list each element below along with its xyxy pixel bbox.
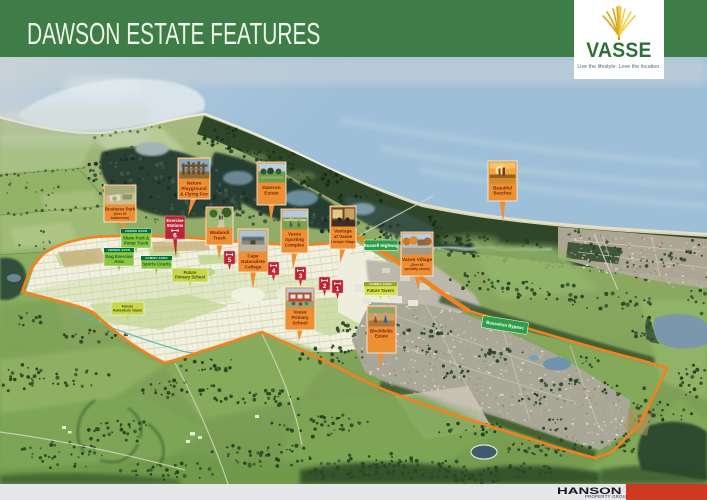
svg-text:at Vasse: at Vasse bbox=[334, 234, 353, 239]
svg-text:Future Tavern: Future Tavern bbox=[367, 288, 394, 293]
svg-text:Primary: Primary bbox=[291, 315, 309, 320]
svg-text:Primary School: Primary School bbox=[175, 275, 205, 280]
svg-text:Dawson: Dawson bbox=[262, 185, 280, 191]
svg-text:COMING SOON: COMING SOON bbox=[145, 256, 167, 260]
svg-text:Stations: Stations bbox=[167, 223, 184, 228]
svg-text:3: 3 bbox=[299, 273, 303, 280]
svg-text:businesses): businesses) bbox=[111, 216, 129, 220]
svg-text:specialty stores): specialty stores) bbox=[404, 267, 429, 271]
svg-text:Business Park: Business Park bbox=[105, 207, 136, 212]
svg-text:Sports Courts: Sports Courts bbox=[142, 262, 171, 267]
svg-text:5: 5 bbox=[228, 257, 232, 264]
svg-text:6: 6 bbox=[173, 233, 177, 240]
svg-text:Lifestyle Village: Lifestyle Village bbox=[331, 240, 355, 244]
svg-text:Vasse: Vasse bbox=[293, 310, 306, 315]
svg-text:Estate: Estate bbox=[264, 191, 279, 197]
svg-text:Adventure Oasis: Adventure Oasis bbox=[113, 309, 142, 313]
svg-text:Track: Track bbox=[213, 236, 226, 242]
svg-text:COMING SOON: COMING SOON bbox=[108, 248, 130, 252]
svg-text:Complex: Complex bbox=[285, 243, 305, 248]
svg-text:& Flying Fox: & Flying Fox bbox=[180, 192, 208, 197]
svg-text:Beaches: Beaches bbox=[493, 191, 512, 196]
svg-text:Wadandi: Wadandi bbox=[210, 230, 230, 236]
svg-text:Vasse Village: Vasse Village bbox=[402, 257, 433, 263]
svg-text:Playground: Playground bbox=[181, 186, 206, 191]
svg-text:Area: Area bbox=[114, 259, 124, 264]
svg-text:Pump Track: Pump Track bbox=[124, 240, 149, 245]
svg-text:Nature: Nature bbox=[187, 181, 202, 186]
svg-text:Bussell Highway: Bussell Highway bbox=[364, 243, 399, 248]
svg-text:Cape: Cape bbox=[247, 254, 259, 259]
svg-text:College: College bbox=[245, 265, 262, 270]
svg-text:COMING SOON: COMING SOON bbox=[125, 229, 147, 233]
svg-text:School: School bbox=[292, 321, 307, 326]
svg-text:2: 2 bbox=[323, 283, 327, 290]
svg-text:1: 1 bbox=[336, 286, 340, 293]
svg-text:4: 4 bbox=[272, 268, 276, 275]
svg-text:Vasse: Vasse bbox=[288, 232, 301, 237]
svg-text:Vantage: Vantage bbox=[334, 229, 352, 234]
svg-text:Sporting: Sporting bbox=[285, 237, 304, 242]
svg-text:COMING SOON: COMING SOON bbox=[369, 282, 391, 286]
svg-text:Naturaliste: Naturaliste bbox=[241, 259, 265, 264]
svg-text:Estate: Estate bbox=[375, 334, 389, 339]
